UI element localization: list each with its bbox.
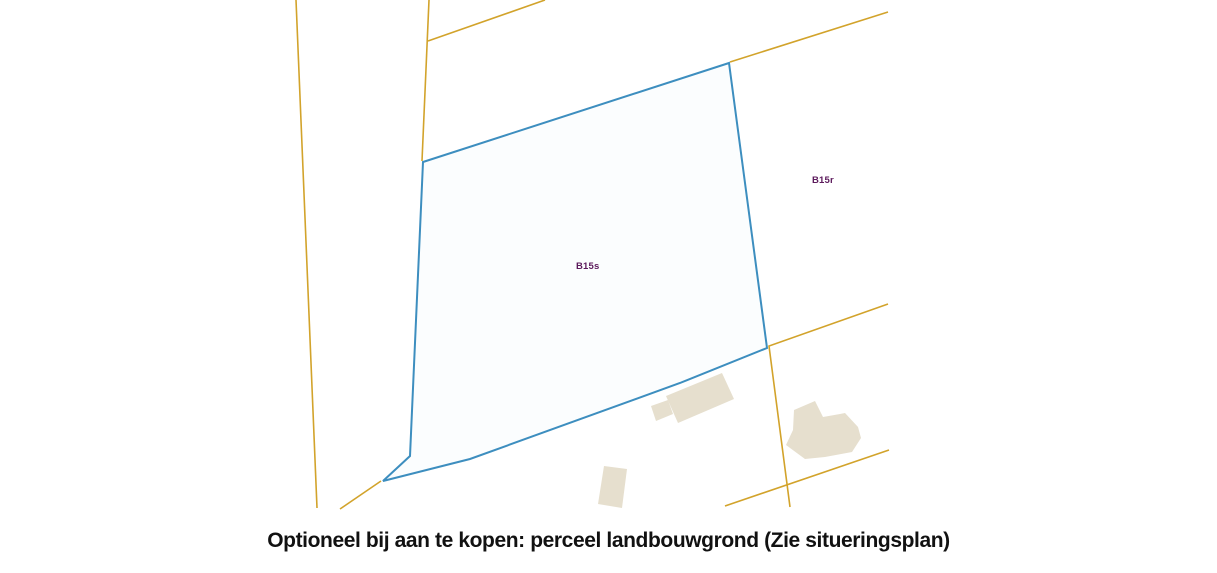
cadastral-plan-view: B15s B15r Optioneel bij aan te kopen: pe… bbox=[0, 0, 1217, 573]
parcel-label-b15s: B15s bbox=[576, 261, 600, 272]
road-line-east-bend bbox=[769, 304, 888, 507]
building-footprint-east bbox=[786, 401, 861, 459]
parcel-b15s-boundary bbox=[383, 63, 767, 481]
parcel-label-b15r: B15r bbox=[812, 175, 834, 186]
road-line-bottom-left-spur bbox=[340, 481, 381, 509]
cadastral-map: B15s B15r bbox=[0, 0, 1217, 515]
road-line-top-right-diagonal bbox=[730, 12, 888, 62]
cadastral-map-canvas bbox=[0, 0, 1217, 515]
plan-caption: Optioneel bij aan te kopen: perceel land… bbox=[0, 529, 1217, 553]
road-line-west bbox=[296, 0, 317, 508]
road-line-top-left-diagonal bbox=[428, 0, 545, 41]
road-line-middle bbox=[422, 0, 429, 161]
building-footprint-small bbox=[598, 466, 627, 508]
